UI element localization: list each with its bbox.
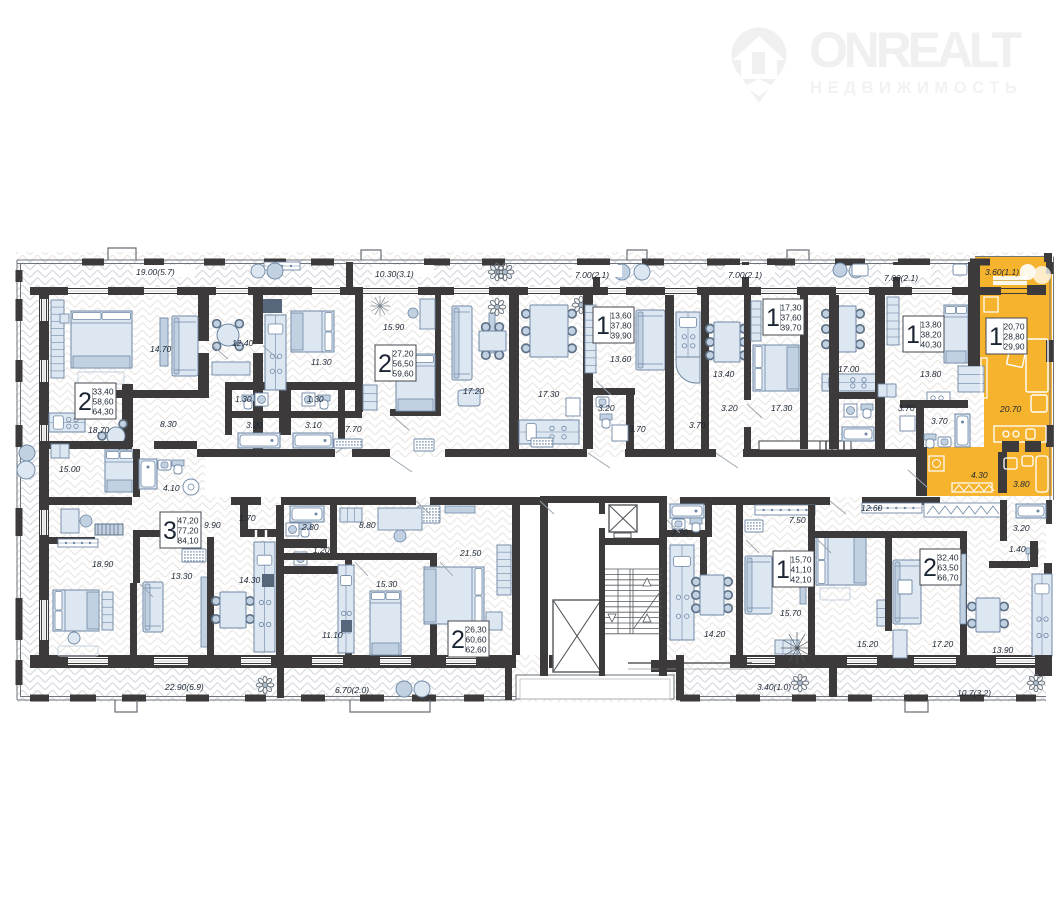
svg-text:77,20: 77,20 <box>178 526 199 536</box>
svg-text:39,90: 39,90 <box>611 331 632 341</box>
svg-text:12.60: 12.60 <box>861 503 883 513</box>
svg-text:11.30: 11.30 <box>311 357 332 367</box>
svg-text:3.10: 3.10 <box>305 420 322 430</box>
svg-text:7.00(2.1): 7.00(2.1) <box>884 273 918 283</box>
svg-text:7.50: 7.50 <box>789 515 806 525</box>
svg-text:60,60: 60,60 <box>466 635 487 645</box>
svg-text:7.70: 7.70 <box>345 424 362 434</box>
svg-text:15.90: 15.90 <box>383 322 405 332</box>
svg-text:17.20: 17.20 <box>932 639 954 649</box>
svg-text:15,70: 15,70 <box>791 555 812 565</box>
svg-text:1.20: 1.20 <box>313 545 330 555</box>
svg-text:40,30: 40,30 <box>921 340 942 350</box>
svg-text:13,60: 13,60 <box>611 311 632 321</box>
svg-text:2: 2 <box>378 350 392 378</box>
svg-text:63,50: 63,50 <box>938 563 959 573</box>
svg-text:3.60(1.1): 3.60(1.1) <box>985 267 1019 277</box>
svg-text:17.30: 17.30 <box>771 403 793 413</box>
svg-text:1: 1 <box>776 556 790 584</box>
svg-text:НЕДВИЖИМОСТЬ: НЕДВИЖИМОСТЬ <box>810 79 1022 97</box>
svg-text:1.70: 1.70 <box>239 513 256 523</box>
svg-text:3.70: 3.70 <box>671 527 688 537</box>
svg-text:2: 2 <box>451 626 465 654</box>
svg-text:1.30: 1.30 <box>235 394 252 404</box>
svg-text:37,80: 37,80 <box>611 321 632 331</box>
svg-text:3.70: 3.70 <box>689 420 706 430</box>
svg-text:21.50: 21.50 <box>459 548 482 558</box>
svg-text:14.70: 14.70 <box>150 344 172 354</box>
svg-text:27,20: 27,20 <box>393 349 414 359</box>
svg-text:3.20: 3.20 <box>721 403 738 413</box>
svg-text:4.10: 4.10 <box>163 483 180 493</box>
svg-text:66,70: 66,70 <box>938 573 959 583</box>
svg-text:17,30: 17,30 <box>781 303 802 313</box>
svg-text:1: 1 <box>906 321 920 349</box>
svg-text:15.00: 15.00 <box>59 464 81 474</box>
svg-text:9.90: 9.90 <box>204 520 221 530</box>
svg-text:33,40: 33,40 <box>93 387 114 397</box>
svg-text:58,60: 58,60 <box>93 397 114 407</box>
svg-text:3.20: 3.20 <box>598 403 615 413</box>
svg-text:15.70: 15.70 <box>780 608 802 618</box>
svg-text:1: 1 <box>766 304 780 332</box>
svg-text:26,30: 26,30 <box>466 625 487 635</box>
svg-text:17.30: 17.30 <box>538 389 560 399</box>
svg-text:22.90(6.9): 22.90(6.9) <box>164 682 204 692</box>
svg-text:17.20: 17.20 <box>463 386 485 396</box>
svg-text:1: 1 <box>596 312 610 340</box>
svg-text:3.70: 3.70 <box>898 403 915 413</box>
svg-text:3.80: 3.80 <box>1013 479 1030 489</box>
svg-text:13.30: 13.30 <box>171 571 193 581</box>
svg-text:3.70: 3.70 <box>931 416 948 426</box>
svg-text:4.30: 4.30 <box>971 470 988 480</box>
svg-text:41,10: 41,10 <box>791 565 812 575</box>
svg-text:18.90: 18.90 <box>92 559 114 569</box>
svg-text:11.10: 11.10 <box>322 630 343 640</box>
svg-text:29,90: 29,90 <box>1004 342 1025 352</box>
svg-text:1.30: 1.30 <box>307 394 324 404</box>
svg-text:3.70: 3.70 <box>629 424 646 434</box>
svg-text:13.60: 13.60 <box>610 354 632 364</box>
svg-text:13.90: 13.90 <box>992 645 1014 655</box>
svg-text:1.40: 1.40 <box>1009 544 1026 554</box>
svg-text:20.70: 20.70 <box>999 404 1022 414</box>
svg-text:13.40: 13.40 <box>713 369 735 379</box>
svg-text:7.00(2.1): 7.00(2.1) <box>575 270 609 280</box>
svg-text:6.70(2.0): 6.70(2.0) <box>335 685 369 695</box>
svg-text:10.30(3.1): 10.30(3.1) <box>375 269 414 279</box>
svg-text:38,20: 38,20 <box>921 330 942 340</box>
svg-text:7.00(2.1): 7.00(2.1) <box>728 270 762 280</box>
svg-text:3.40(1.0): 3.40(1.0) <box>757 682 791 692</box>
svg-text:47,20: 47,20 <box>178 516 199 526</box>
svg-text:8.80: 8.80 <box>359 520 376 530</box>
svg-text:14.20: 14.20 <box>704 629 726 639</box>
svg-text:8.30: 8.30 <box>160 419 177 429</box>
svg-text:10.7(3.2): 10.7(3.2) <box>957 688 991 698</box>
svg-text:2.80: 2.80 <box>301 522 319 532</box>
svg-text:3.20: 3.20 <box>246 420 263 430</box>
svg-text:15.30: 15.30 <box>376 579 398 589</box>
svg-text:39,70: 39,70 <box>781 323 802 333</box>
svg-text:12.40: 12.40 <box>232 338 254 348</box>
svg-text:3: 3 <box>163 517 177 545</box>
svg-text:17.00: 17.00 <box>838 364 860 374</box>
svg-text:ONREALT: ONREALT <box>809 22 1022 78</box>
svg-text:19.00(5.7): 19.00(5.7) <box>136 267 175 277</box>
svg-text:1: 1 <box>989 323 1003 351</box>
svg-text:14.30: 14.30 <box>239 575 261 585</box>
svg-text:64,30: 64,30 <box>93 407 114 417</box>
svg-text:15.20: 15.20 <box>857 639 879 649</box>
svg-text:28,80: 28,80 <box>1004 332 1025 342</box>
svg-text:18.70: 18.70 <box>88 425 110 435</box>
svg-text:20,70: 20,70 <box>1004 322 1025 332</box>
svg-text:13,80: 13,80 <box>921 320 942 330</box>
svg-text:56,50: 56,50 <box>393 359 414 369</box>
svg-text:3.20: 3.20 <box>1013 523 1030 533</box>
svg-text:2: 2 <box>78 388 92 416</box>
svg-text:32,40: 32,40 <box>938 553 959 563</box>
svg-text:62,60: 62,60 <box>466 645 487 655</box>
svg-text:42,10: 42,10 <box>791 575 812 585</box>
svg-text:37,60: 37,60 <box>781 313 802 323</box>
svg-text:59,60: 59,60 <box>393 369 414 379</box>
svg-text:84,10: 84,10 <box>178 536 199 546</box>
svg-text:13.80: 13.80 <box>920 369 942 379</box>
svg-text:2: 2 <box>923 554 937 582</box>
